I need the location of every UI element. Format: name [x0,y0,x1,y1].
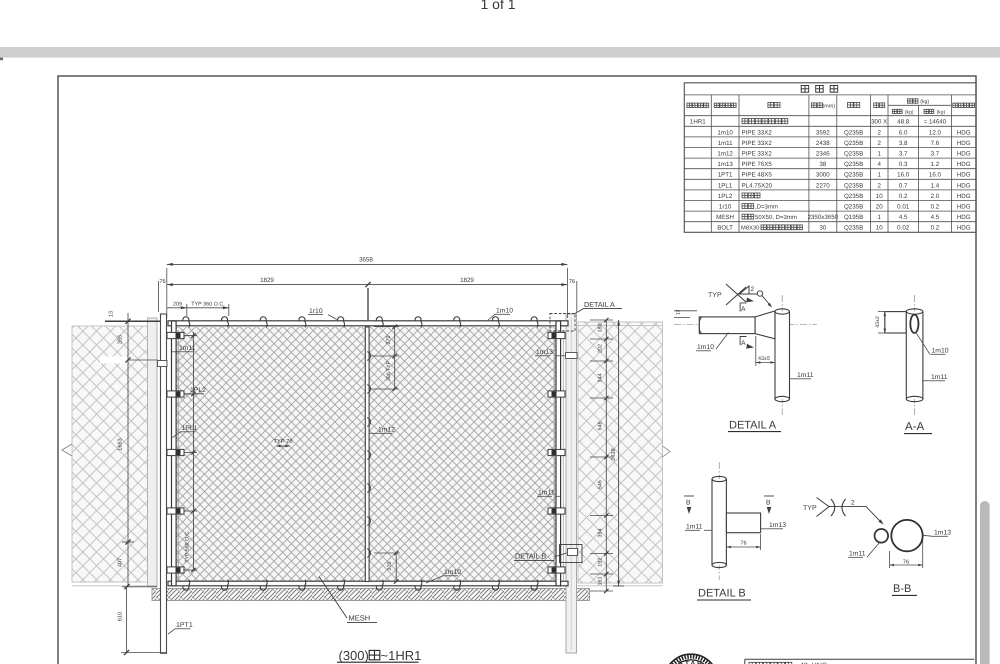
svg-text:DETAIL A: DETAIL A [584,300,615,309]
svg-text:Q235B: Q235B [844,172,863,179]
svg-text:3592: 3592 [816,129,830,136]
svg-text:2350x3650: 2350x3650 [807,214,838,221]
svg-text:0.2: 0.2 [931,204,940,211]
svg-text:0.7: 0.7 [899,182,908,189]
svg-text:1m13: 1m13 [769,522,786,529]
svg-text:1r10: 1r10 [309,308,323,315]
svg-text:Q235B: Q235B [844,129,863,136]
svg-text:1: 1 [877,151,881,158]
svg-text:50X50, D=3mm: 50X50, D=3mm [755,214,797,221]
svg-text:MESH: MESH [349,614,371,623]
svg-text:1829: 1829 [260,277,274,284]
svg-text:HDG: HDG [957,161,971,168]
svg-text:13: 13 [109,311,115,317]
svg-text:1PL2: 1PL2 [190,387,206,394]
svg-text:= 14640: = 14640 [924,119,947,126]
svg-text:3658: 3658 [359,257,373,264]
svg-text:300 X: 300 X [871,119,887,126]
svg-text:TYP 560 O.C.: TYP 560 O.C. [185,530,191,562]
svg-text:306 TYP: 306 TYP [386,360,392,381]
svg-text:1 of 1: 1 of 1 [480,0,515,12]
svg-text:1829: 1829 [460,277,474,284]
svg-text:1m11: 1m11 [538,490,555,497]
svg-text:3.7: 3.7 [899,151,908,158]
svg-text:76: 76 [740,541,746,547]
svg-text:1663: 1663 [118,438,124,450]
svg-text:Q195B: Q195B [844,214,863,221]
svg-text:76: 76 [903,560,909,566]
svg-text:1m13: 1m13 [536,349,553,356]
svg-text:1.4: 1.4 [931,182,940,189]
svg-text:4: 4 [877,161,881,168]
svg-text:202: 202 [598,344,604,353]
svg-text:16.0: 16.0 [929,172,942,179]
svg-text:0.3: 0.3 [899,161,908,168]
svg-text:1m12: 1m12 [717,151,733,158]
svg-text:0.01: 0.01 [897,204,910,211]
svg-text:A: A [741,306,746,313]
svg-text:48.8: 48.8 [897,119,910,126]
svg-text:Q235B: Q235B [844,151,863,158]
svg-text:0.2: 0.2 [931,225,940,232]
svg-text:B-B: B-B [893,583,911,595]
svg-text:1r10: 1r10 [719,204,732,211]
svg-text:(kg): (kg) [905,109,914,115]
svg-text:2270: 2270 [816,182,830,189]
svg-text:STAR: STAR [678,659,704,664]
svg-text:HDG: HDG [957,151,971,158]
svg-text:4.5: 4.5 [899,214,908,221]
svg-text:610: 610 [118,612,124,621]
svg-text:76: 76 [569,279,575,285]
svg-text:192: 192 [598,558,604,567]
svg-text:HDG: HDG [957,182,971,189]
svg-text:4.5: 4.5 [931,214,940,221]
svg-text:209: 209 [173,301,182,307]
svg-text:30: 30 [819,225,826,232]
svg-text:1.2: 1.2 [931,161,940,168]
svg-text:TYP 76: TYP 76 [273,438,292,445]
svg-text:Q235B: Q235B [844,161,863,168]
svg-text:1m11: 1m11 [849,551,866,558]
svg-text:HDG: HDG [957,225,971,232]
svg-text:3000: 3000 [816,172,830,179]
svg-text:2438: 2438 [816,140,830,147]
svg-text:546: 546 [598,480,604,489]
svg-text:HDG: HDG [957,129,971,136]
svg-text:TYP: TYP [803,505,817,512]
svg-text:1m11: 1m11 [179,345,196,352]
svg-text:(kg): (kg) [937,109,946,115]
svg-text:HDG: HDG [957,172,971,179]
svg-text:PL4.75X20: PL4.75X20 [742,182,773,189]
svg-text:Q235B: Q235B [844,140,863,147]
svg-text:2: 2 [877,182,881,189]
svg-text:38: 38 [819,161,826,168]
svg-text:0.2: 0.2 [899,193,908,200]
svg-text:(kg): (kg) [920,99,929,105]
svg-text:12.0: 12.0 [929,129,942,136]
svg-text:270: 270 [387,562,393,571]
svg-text:DETAIL A: DETAIL A [729,420,777,432]
svg-text:1m10: 1m10 [932,348,949,355]
svg-text:A: A [741,340,746,347]
svg-text:HDG: HDG [957,204,971,211]
svg-text:M8X30: M8X30 [741,225,759,232]
svg-text:6.0: 6.0 [899,129,908,136]
svg-text:Q235B: Q235B [844,182,863,189]
svg-text:(mm): (mm) [823,104,836,110]
svg-text:1: 1 [877,172,881,179]
svg-text:HDG: HDG [957,214,971,221]
svg-text:354: 354 [598,529,604,538]
svg-text:1m10: 1m10 [496,308,513,315]
svg-text:BOLT: BOLT [717,225,733,232]
svg-text:344: 344 [598,374,604,383]
svg-text:HDG: HDG [957,140,971,147]
svg-text:10: 10 [876,225,883,232]
svg-text:1m11: 1m11 [686,524,703,531]
svg-text:10: 10 [876,193,883,200]
svg-text:2: 2 [751,286,755,293]
svg-text:1m11: 1m11 [718,140,734,147]
svg-text:1m10: 1m10 [444,569,461,576]
svg-text:1m13: 1m13 [934,530,951,537]
svg-text:1m11: 1m11 [931,374,948,381]
svg-text:20: 20 [876,204,883,211]
svg-text:2: 2 [851,500,855,507]
svg-text:HDG: HDG [957,193,971,200]
svg-text:1m13: 1m13 [717,161,733,168]
svg-text:16.0: 16.0 [897,172,910,179]
svg-text:1m12: 1m12 [378,427,395,434]
svg-text:1m10: 1m10 [717,129,733,136]
svg-text:PIPE 33X2: PIPE 33X2 [742,140,773,147]
svg-text:(300): (300) [339,648,369,663]
svg-text:PIPE 48X5: PIPE 48X5 [742,172,773,179]
svg-text:A-A: A-A [905,421,925,433]
svg-text:MESH: MESH [716,214,734,221]
svg-text:Q235B: Q235B [844,193,863,200]
svg-text:TYP 360 O.C.: TYP 360 O.C. [191,301,224,307]
svg-text:355: 355 [118,335,124,344]
svg-text:1PT1: 1PT1 [176,622,193,629]
svg-text:1HR1: 1HR1 [690,119,706,126]
svg-text:Q235B: Q235B [844,204,863,211]
svg-text:13: 13 [676,310,682,316]
svg-text:1PL1: 1PL1 [718,182,733,189]
svg-text:B: B [766,500,771,507]
svg-text:2346: 2346 [816,151,830,158]
svg-text:1m10: 1m10 [697,344,714,351]
svg-text:,D=3mm: ,D=3mm [755,204,778,211]
svg-text:43±5: 43±5 [758,356,770,362]
svg-text:1m11: 1m11 [797,372,814,379]
svg-text:1PL2: 1PL2 [718,193,733,200]
svg-text:7.6: 7.6 [931,140,940,147]
svg-text:2.0: 2.0 [931,193,940,200]
svg-text:270: 270 [386,336,392,345]
svg-text:43±2: 43±2 [875,316,881,328]
svg-text:0.02: 0.02 [897,225,910,232]
svg-text:2: 2 [877,140,881,147]
svg-text:PIPE 33X2: PIPE 33X2 [742,151,773,158]
svg-text:1PT1: 1PT1 [718,172,733,179]
svg-text:2438: 2438 [611,448,617,460]
svg-text:PIPE 33X2: PIPE 33X2 [742,129,773,136]
svg-text:2: 2 [877,129,881,136]
svg-text:180: 180 [598,324,604,333]
svg-text:~1HR1: ~1HR1 [381,648,422,663]
svg-text:407: 407 [118,558,124,567]
svg-text:546: 546 [598,422,604,431]
svg-text:TYP: TYP [708,292,722,299]
svg-text:3.7: 3.7 [931,151,940,158]
svg-text:161: 161 [598,577,604,586]
svg-text:76: 76 [159,279,165,285]
svg-text:B: B [686,500,691,507]
svg-text:1PL1: 1PL1 [182,425,198,432]
svg-text:PIPE 76X5: PIPE 76X5 [742,161,773,168]
svg-text:DETAIL B: DETAIL B [698,588,746,600]
svg-text:Q235B: Q235B [844,225,863,232]
svg-text:1: 1 [877,214,881,221]
svg-text:3.8: 3.8 [899,140,908,147]
svg-text:DETAIL B: DETAIL B [515,552,546,561]
